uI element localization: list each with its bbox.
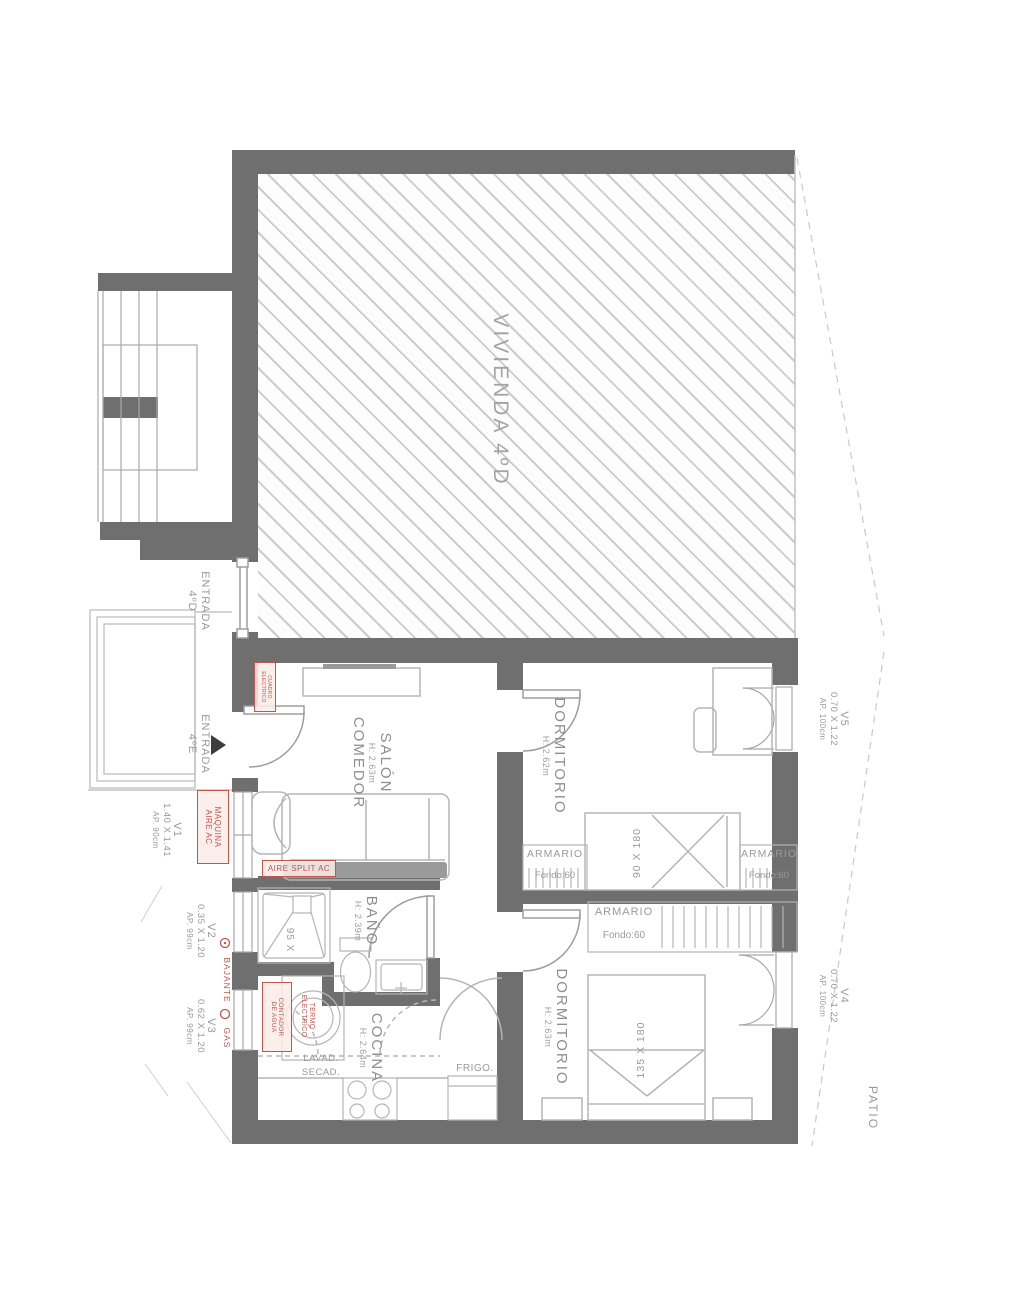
- cocina-height: H: 2.64m: [357, 1028, 367, 1069]
- contador-agua-label: CONTADOR DE AGUA: [269, 986, 285, 1048]
- bano-height: H: 2.39m: [352, 901, 362, 942]
- salon-sideboard: [303, 664, 420, 696]
- armario3-name: ARMARIO: [590, 905, 658, 920]
- entrance-4d-line1: ENTRADA: [198, 571, 211, 631]
- vivienda-4d-label: VIVIENDA 4ºD: [485, 280, 515, 520]
- dormitorio1-bed: [585, 813, 740, 890]
- entrance-4e-line2: 4ºE: [185, 734, 198, 754]
- v5-id: V5: [838, 711, 851, 726]
- dormitorio1-name: DORMITORIO: [551, 697, 568, 814]
- washer-label-line2: SECAD.: [294, 1067, 348, 1079]
- entrance-4e-label: ENTRADA 4ºE: [184, 699, 212, 789]
- bed1-size-label: 90 X 180: [630, 818, 644, 888]
- v1-size: 1.40 X 1.41: [160, 803, 171, 857]
- washer-label-line1: LAVAD.: [294, 1053, 348, 1065]
- cuadro-electrico-label: CUADRO ELECTRICO: [258, 664, 272, 710]
- shower-size-label: 95 X: [283, 918, 295, 962]
- window-v4-label: V4 0.70 X 1.22 AP. 100cm: [812, 954, 856, 1038]
- salon-height: H: 2.63m: [367, 743, 377, 784]
- v2-size: 0.35 X 1.20: [194, 904, 205, 958]
- v3-sill: AP. 99cm: [185, 1007, 194, 1045]
- bano-label: BAÑO H: 2.39m: [348, 881, 384, 961]
- v2-sill: AP. 99cm: [185, 912, 194, 950]
- termo-electrico-label: TERMO ELECTRICO: [299, 982, 315, 1050]
- door-entrance-4d: [237, 558, 248, 638]
- aire-split-ac-label: AIRE SPLIT AC: [268, 864, 330, 873]
- armario1-name: ARMARIO: [524, 847, 586, 861]
- v3-size: 0.62 X 1.20: [194, 999, 205, 1053]
- v5-size: 0.70 X 1.22: [827, 692, 838, 746]
- maquina-aire-ac-label: MAQUINA AIRE AC: [202, 794, 224, 860]
- cocina-name: COCINA: [368, 1013, 385, 1083]
- entrance-4e-line1: ENTRADA: [198, 714, 211, 774]
- entrance-4e-arrow: [211, 735, 226, 755]
- contador-agua-box: CONTADOR DE AGUA: [262, 982, 292, 1052]
- armario1-depth: Fondo:60: [524, 870, 586, 882]
- bajante-label: BAJANTE: [220, 947, 232, 1013]
- window-v4-symbol: [739, 952, 792, 1028]
- dormitorio1-label: DORMITORIO H: 2.62m: [536, 691, 572, 821]
- v4-sill: AP. 100cm: [818, 975, 827, 1018]
- v2-id: V2: [205, 923, 218, 938]
- bed2-size-label: 135 X 180: [634, 1012, 648, 1088]
- maquina-aire-ac-box: MAQUINA AIRE AC: [197, 790, 229, 864]
- v3-id: V3: [205, 1018, 218, 1033]
- dormitorio1-desk: [694, 668, 772, 755]
- fridge: [448, 1076, 497, 1120]
- dormitorio2-label: DORMITORIO H: 2.63m: [538, 962, 574, 1092]
- salon-name-line1: SALÓN: [377, 733, 394, 794]
- fridge-label: FRIGO.: [450, 1062, 500, 1075]
- dormitorio1-height: H: 2.62m: [540, 736, 550, 777]
- dormitorio2-height: H: 2.63m: [542, 1007, 552, 1048]
- door-cocina: [440, 978, 502, 1040]
- aire-split-ac-box: AIRE SPLIT AC: [262, 860, 336, 877]
- patio-label: PATIO: [864, 1078, 880, 1138]
- bano-name: BAÑO: [363, 896, 380, 947]
- window-v5-label: V5 0.70 X 1.22 AP. 100cm: [812, 677, 856, 761]
- gas-label: GAS: [220, 1018, 232, 1058]
- v5-sill: AP. 100cm: [818, 698, 827, 741]
- salon-label: SALÓN H: 2.63m COMEDOR: [345, 703, 399, 823]
- armario3-depth: Fondo:60: [590, 929, 658, 942]
- window-v3-label: V3 0.62 X 1.20 AP. 99cm: [179, 986, 223, 1066]
- door-entrance-4e: [244, 706, 304, 767]
- salon-armchair: [252, 792, 290, 854]
- window-v1-symbol: [234, 792, 252, 878]
- window-v3-symbol: [234, 990, 252, 1050]
- window-v1-label: V1 1.40 X 1.41 AP. 90cm: [145, 789, 189, 871]
- staircase: [98, 291, 197, 522]
- dormitorio2-name: DORMITORIO: [553, 968, 570, 1085]
- entrance-4d-label: ENTRADA 4ºD: [184, 556, 212, 646]
- window-v2-label: V2 0.35 X 1.20 AP. 99cm: [179, 891, 223, 971]
- cuadro-electrico-box: CUADRO ELECTRICO: [254, 662, 276, 712]
- v1-id: V1: [171, 822, 184, 837]
- v4-id: V4: [838, 988, 851, 1003]
- v4-size: 0.70 X 1.22: [827, 969, 838, 1023]
- armario2-depth: Fondo:60: [741, 870, 797, 882]
- window-v5-symbol: [743, 687, 792, 750]
- entrance-4d-line2: 4ºD: [185, 590, 198, 611]
- v1-sill: AP. 90cm: [151, 811, 160, 849]
- floor-plan: VIVIENDA 4ºD ENTRADA 4ºD ENTRADA 4ºE SAL…: [0, 0, 1019, 1300]
- window-v2-symbol: [234, 892, 252, 952]
- salon-name-line2: COMEDOR: [350, 717, 367, 809]
- washbasin: [376, 960, 427, 994]
- armario2-name: ARMARIO: [741, 847, 797, 861]
- cocina-label: COCINA H: 2.64m: [353, 1003, 389, 1093]
